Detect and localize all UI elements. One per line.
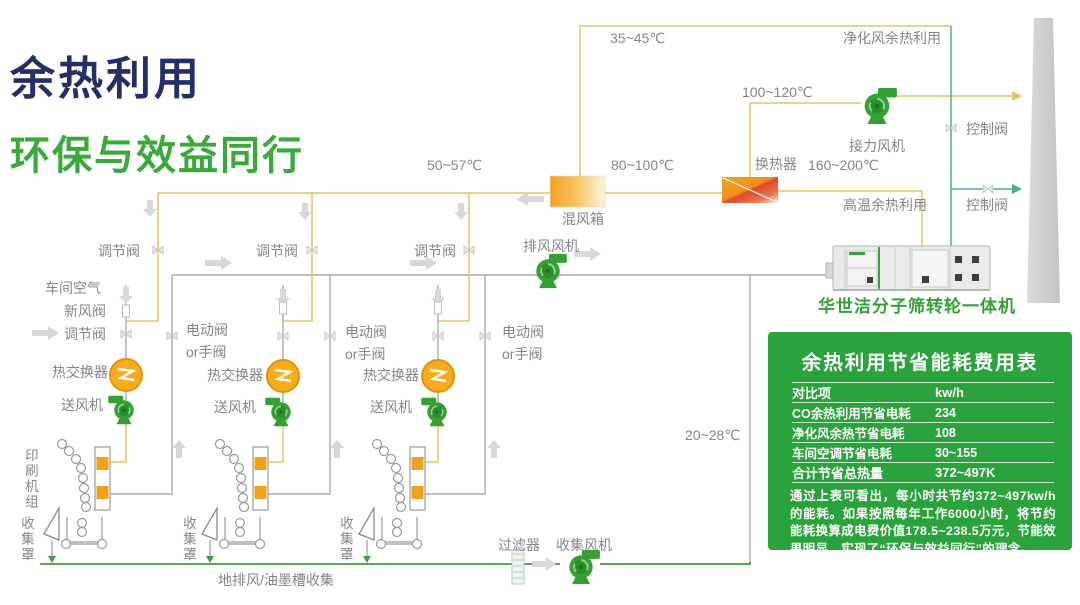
supply-fan-icon-3 <box>421 398 447 427</box>
label-collect-hood-1: 收集罩 <box>18 516 33 563</box>
exhaust-fan-icon <box>536 254 567 288</box>
collect-fan-icon <box>569 550 600 584</box>
label-regulate-valve-2: 调节阀 <box>256 243 298 259</box>
label-purified-air-heat: 净化风余热利用 <box>843 30 941 46</box>
chimney <box>1027 18 1060 303</box>
waste-heat-infographic: 余热利用 环保与效益同行 35~45℃ 净化风余热利用 100~120℃ 接力风… <box>0 0 1080 605</box>
printing-unit-3 <box>373 440 426 549</box>
label-floor-collect: 地排风/油墨槽收集 <box>218 572 334 588</box>
label-collect-hood-3: 收集罩 <box>337 516 352 563</box>
savings-header-item: 对比项 <box>792 383 935 402</box>
label-fresh-air-valve: 新风阀 <box>64 303 106 319</box>
supply-fan-icon-2 <box>265 398 291 427</box>
label-collect-fan: 收集风机 <box>556 537 612 553</box>
label-control-valve-top: 控制阀 <box>966 121 1008 137</box>
label-printing-unit: 印刷机组 <box>22 448 37 510</box>
page-subtitle: 环保与效益同行 <box>10 123 304 181</box>
yellow-arrowhead-chimney <box>1012 91 1022 101</box>
table-row: 车间空调节省电耗 30~155 <box>792 443 1054 463</box>
label-hx-unit-2: 热交换器 <box>207 367 263 383</box>
label-collect-hood-2: 收集罩 <box>180 516 195 563</box>
label-hx-unit-1: 热交换器 <box>52 364 108 380</box>
label-mix-box: 混风箱 <box>562 211 604 227</box>
supply-fan-icon-1 <box>108 396 134 425</box>
temp-label-50-57: 50~57℃ <box>427 157 482 173</box>
savings-panel: 余热利用节省能耗费用表 对比项 kw/h CO余热利用节省电耗 234 净化风余… <box>768 332 1072 550</box>
temp-label-20-28: 20~28℃ <box>685 427 740 443</box>
temp-label-160-200: 160~200℃ <box>808 157 879 173</box>
label-supply-fan-2: 送风机 <box>214 399 256 415</box>
row-value: 372~497K <box>935 465 995 480</box>
label-relay-fan: 接力风机 <box>849 138 905 154</box>
label-regulate-valve-3: 调节阀 <box>414 243 456 259</box>
label-heat-exchanger: 换热器 <box>755 156 797 172</box>
row-value: 30~155 <box>935 446 977 460</box>
collect-hood-icon-3 <box>359 508 374 540</box>
savings-note: 通过上表可看出，每小时共节约372~497kw/h的能耗。如果按照每年工作600… <box>790 488 1056 558</box>
row-item: 合计节省总热量 <box>792 463 935 482</box>
table-row: 净化风余热节省电耗 108 <box>792 423 1054 443</box>
machine-image <box>826 246 990 290</box>
label-filter: 过滤器 <box>498 537 540 553</box>
label-motor-valve-3: 电动阀 or手阀 <box>502 322 544 365</box>
temp-label-80-100: 80~100℃ <box>611 157 674 173</box>
label-supply-fan-1: 送风机 <box>61 397 103 413</box>
mix-box <box>550 176 605 207</box>
table-row-total: 合计节省总热量 372~497K <box>792 463 1054 483</box>
heat-exchanger-block <box>722 177 778 203</box>
row-item: 车间空调节省电耗 <box>792 443 935 462</box>
green-down-arrows <box>48 556 371 563</box>
teal-arrowhead-chimney <box>1012 184 1022 194</box>
label-workshop-air: 车间空气 <box>45 280 101 296</box>
savings-table-header: 对比项 kw/h <box>792 383 1054 403</box>
relay-fan-icon <box>865 88 897 124</box>
machine-name: 华世洁分子筛转轮一体机 <box>818 292 1016 317</box>
temp-label-100-120: 100~120℃ <box>742 84 813 100</box>
label-hx-unit-3: 热交换器 <box>363 367 419 383</box>
savings-header-value: kw/h <box>935 385 964 400</box>
label-motor-valve-2: 电动阀 or手阀 <box>345 322 387 365</box>
collect-hood-icon-2 <box>202 508 217 540</box>
green-collect-line <box>40 562 750 564</box>
label-regulate-valve-small: 调节阀 <box>64 326 106 342</box>
savings-table: 对比项 kw/h CO余热利用节省电耗 234 净化风余热节省电耗 108 车间… <box>792 382 1054 483</box>
label-high-temp-use: 高温余热利用 <box>843 197 927 213</box>
row-value: 234 <box>935 406 956 420</box>
row-value: 108 <box>935 426 956 440</box>
collect-hood-icon-1 <box>44 508 59 540</box>
printing-unit-2 <box>216 440 269 549</box>
row-item: CO余热利用节省电耗 <box>792 403 935 422</box>
table-row: CO余热利用节省电耗 234 <box>792 403 1054 423</box>
label-regulate-valve-1: 调节阀 <box>98 243 140 259</box>
label-motor-valve-1: 电动阀 or手阀 <box>186 320 228 363</box>
label-control-valve-bottom: 控制阀 <box>966 197 1008 213</box>
label-exhaust-fan: 排风风机 <box>523 238 579 254</box>
temp-label-35-45: 35~45℃ <box>610 30 665 46</box>
page-title: 余热利用 <box>10 42 202 107</box>
filter-icon <box>512 550 524 584</box>
label-supply-fan-3: 送风机 <box>370 399 412 415</box>
row-item: 净化风余热节省电耗 <box>792 423 935 442</box>
savings-panel-title: 余热利用节省能耗费用表 <box>768 346 1072 375</box>
printing-unit-1 <box>58 440 111 549</box>
